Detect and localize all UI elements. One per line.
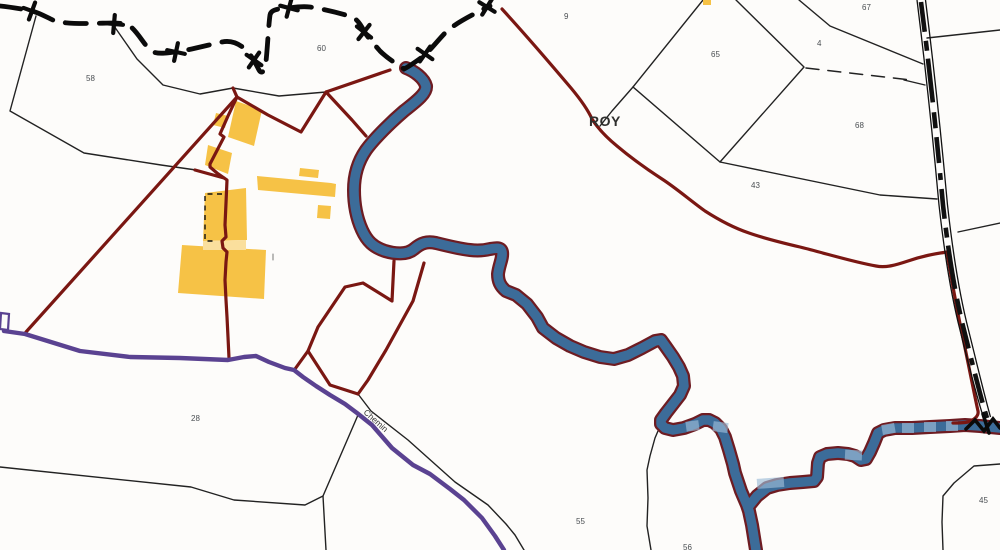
svg-text:58: 58: [86, 74, 95, 83]
svg-text:ROY: ROY: [589, 113, 621, 129]
svg-text:55: 55: [576, 517, 585, 526]
svg-text:65: 65: [711, 50, 720, 59]
svg-text:68: 68: [855, 121, 864, 130]
svg-text:60: 60: [317, 44, 326, 53]
svg-text:45: 45: [979, 496, 988, 505]
svg-text:43: 43: [751, 181, 760, 190]
svg-text:67: 67: [862, 3, 871, 12]
svg-text:56: 56: [683, 543, 692, 550]
svg-text:9: 9: [564, 12, 569, 21]
svg-text:28: 28: [191, 414, 200, 423]
svg-text:4: 4: [817, 39, 822, 48]
